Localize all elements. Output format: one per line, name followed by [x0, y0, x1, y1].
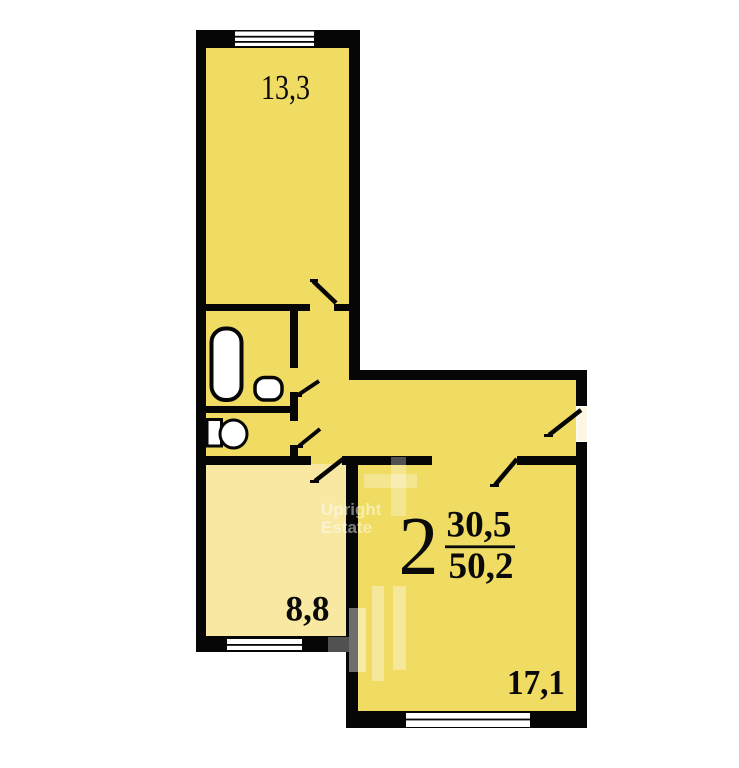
svg-text:Estate: Estate	[321, 518, 372, 537]
svg-text:2: 2	[399, 500, 439, 593]
svg-text:8,8: 8,8	[286, 589, 330, 629]
svg-text:30,5: 30,5	[447, 505, 512, 546]
svg-text:Upright: Upright	[321, 500, 382, 519]
svg-text:50,2: 50,2	[449, 546, 514, 587]
svg-text:17,1: 17,1	[507, 663, 565, 702]
svg-text:13,3: 13,3	[261, 68, 310, 107]
